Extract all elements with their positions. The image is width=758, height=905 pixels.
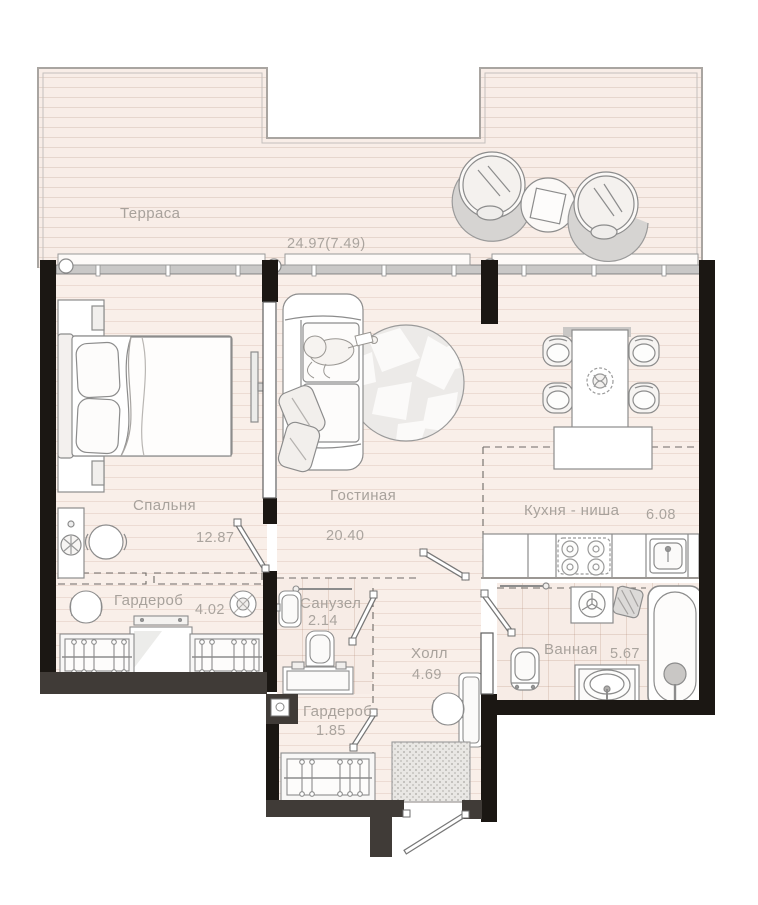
dining-table (572, 330, 628, 430)
round-lounge-chair (568, 172, 648, 261)
clothes-rail-with-hangers (190, 634, 264, 676)
floor-plan: Терраса 24.97(7.49) Спальня 12.87 Гостин… (0, 0, 758, 905)
laundry-basket (612, 585, 644, 618)
room-label-terrace: Терраса (120, 205, 180, 222)
wall-right (699, 260, 715, 715)
pouf (70, 591, 102, 623)
room-area-kitchen-niche: 6.08 (646, 507, 676, 523)
wash-basin (273, 591, 301, 627)
wall-wardrobe2-left (266, 722, 279, 804)
bathroom-furniture (500, 583, 702, 711)
room-label-bathroom: Ванная (544, 641, 598, 658)
wall-pier-bed-living (262, 260, 278, 302)
dining-chair (543, 336, 573, 366)
round-mirror (230, 591, 256, 617)
terrace-furniture (452, 152, 648, 261)
room-label-wc: Санузел (300, 595, 361, 612)
patio-side-table (521, 178, 575, 232)
room-area-wc: 2.14 (308, 613, 338, 629)
room-area-wardrobe-entry: 1.85 (316, 723, 346, 739)
wall-thin-bath-left (481, 633, 493, 694)
wall-left (40, 260, 56, 692)
wall-stub (370, 817, 392, 857)
wall-thin-bed-living (263, 302, 276, 498)
kitchen-furniture (483, 327, 699, 578)
room-label-bedroom: Спальня (133, 497, 196, 514)
living-furniture (276, 294, 464, 474)
wall-tv (251, 352, 264, 422)
kitchen-sink (650, 539, 686, 573)
plan-graphics (0, 0, 758, 905)
dresser-with-mirror (130, 616, 192, 673)
clothes-rail-with-hangers (60, 634, 134, 676)
toilet (511, 648, 539, 690)
kitchen-island (554, 427, 652, 469)
pouf (432, 693, 464, 725)
room-area-bathroom: 5.67 (610, 646, 640, 662)
double-bed (58, 334, 232, 458)
kitchen-counter (483, 534, 699, 578)
room-label-hall: Холл (411, 645, 448, 662)
room-area-bedroom: 12.87 (196, 530, 234, 546)
room-area-terrace: 24.97(7.49) (287, 236, 366, 252)
dining-chair (543, 383, 573, 413)
room-area-living-room: 20.40 (326, 528, 364, 544)
wall-pier-kitchen (481, 260, 498, 324)
wall-hall-bath-pier (481, 694, 497, 822)
hall-furniture (392, 673, 483, 802)
vanity-unit (283, 662, 353, 694)
room-label-kitchen-niche: Кухня - ниша (524, 502, 619, 519)
duct-hatch (271, 699, 289, 716)
nightstand (58, 300, 104, 336)
round-lounge-chair (452, 152, 532, 241)
dresser-with-plant (58, 508, 84, 578)
room-area-hall: 4.69 (412, 667, 442, 683)
dining-chair (629, 336, 659, 366)
washing-machine (571, 587, 613, 623)
room-area-wardrobe-main: 4.02 (195, 602, 225, 618)
room-label-wardrobe-entry: Гардероб (303, 703, 372, 720)
dining-chair (629, 383, 659, 413)
round-armchair (86, 525, 127, 559)
wall-bed-living-lower (263, 498, 277, 524)
wall-bottom-mid (266, 800, 404, 817)
wall-bath-bottom (497, 700, 705, 715)
clothes-rail-with-hangers (281, 753, 375, 801)
room-label-wardrobe-main: Гардероб (114, 592, 183, 609)
wall-bottom-left (40, 672, 267, 694)
towel-rail (293, 586, 352, 592)
bathtub (648, 586, 702, 708)
wardrobe-entry-furniture (281, 753, 375, 801)
doormat (392, 742, 470, 802)
nightstand (58, 456, 104, 492)
room-label-living-room: Гостиная (330, 487, 396, 504)
